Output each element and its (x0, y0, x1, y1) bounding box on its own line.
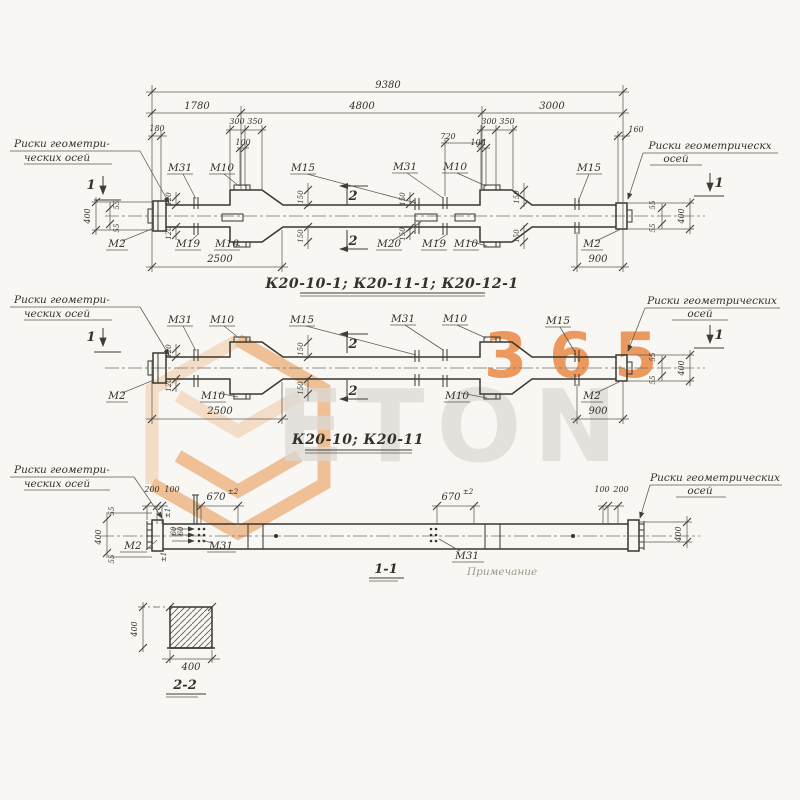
label-m10: М10 (453, 238, 478, 250)
dim-seg3: 3000 (539, 101, 565, 112)
dim-seg1: 1780 (184, 101, 210, 112)
label-m31: М31 (167, 162, 192, 174)
dim-seg2: 4800 (348, 101, 375, 112)
label-m20: М20 (376, 238, 401, 250)
dim-400-height: 400 (130, 621, 139, 637)
label-m2: М2 (107, 238, 126, 250)
dim-150: 150 (513, 190, 521, 204)
drawing-sheet: ETON 365 (0, 0, 800, 800)
dim-900: 900 (588, 254, 608, 265)
dim-55: 55 (113, 223, 121, 232)
label-m31: М31 (390, 313, 415, 325)
label-m31: М31 (454, 550, 479, 562)
dim-55: 55 (649, 352, 657, 361)
dim-120: 120 (165, 226, 173, 240)
dim-2500: 2500 (206, 254, 233, 265)
dim-180: 180 (149, 124, 164, 133)
blueprint-svg: ETON 365 (0, 0, 800, 800)
column-cross-section (170, 607, 212, 648)
dim-tol: ±2 (228, 488, 239, 496)
label-m10: М10 (442, 313, 467, 325)
dim-300: 300 (229, 117, 244, 126)
dim-300b: 300 (481, 117, 496, 126)
dim-400-right: 400 (674, 526, 683, 542)
label-m31: М31 (167, 314, 192, 326)
title-k20-10-1: К20-10-1; К20-11-1; К20-12-1 (264, 276, 518, 292)
dim-400-width: 400 (180, 662, 201, 673)
note-line2: осей (687, 485, 712, 497)
dim-150: 150 (297, 342, 305, 356)
dim-55: 55 (649, 375, 657, 384)
title-k20-10: К20-10; К20-11 (291, 432, 424, 448)
dim-350b: 350 (499, 117, 514, 126)
view-label-1-1: 1-1 (374, 562, 398, 577)
dim-100: 100 (164, 485, 179, 494)
label-m2: М2 (107, 390, 126, 402)
dim-150: 150 (297, 190, 305, 204)
label-m15: М15 (545, 315, 570, 327)
label-m2: М2 (582, 390, 601, 402)
dim-400-left: 400 (83, 208, 92, 224)
label-m10: М10 (214, 238, 239, 250)
dim-150: 150 (297, 229, 305, 243)
section-mark-2: 2 (347, 234, 357, 249)
dim-55: 55 (108, 506, 116, 515)
dim-60: 60 (177, 526, 185, 535)
label-m2: М2 (582, 238, 601, 250)
dim-100: 100 (594, 485, 609, 494)
dim-400-left: 400 (94, 529, 103, 545)
note-line2: ческих осей (24, 308, 90, 320)
note-line2: осей (687, 308, 712, 320)
label-m31: М31 (392, 161, 417, 173)
dim-200: 200 (612, 485, 628, 494)
dim-400: 400 (677, 360, 686, 376)
dim-720: 720 (440, 132, 455, 141)
label-m10: М10 (200, 390, 225, 402)
note-line1: Риски геометрических (646, 295, 777, 307)
label-m15: М15 (576, 162, 601, 174)
dim-55: 55 (649, 200, 657, 209)
label-m10: М10 (209, 162, 234, 174)
note-line2: осей (663, 153, 688, 165)
dim-120: 120 (165, 378, 173, 392)
section-mark-1: 1 (714, 328, 723, 343)
dim-55: 55 (649, 223, 657, 232)
note-line1: Риски геометри- (13, 294, 110, 306)
dim-55: 55 (108, 554, 116, 563)
dim-tol: ±2 (463, 488, 474, 496)
note-line1: Риски геометрическх (647, 140, 771, 152)
label-m31: М31 (208, 540, 233, 552)
label-m2: М2 (123, 540, 142, 552)
section-mark-1: 1 (86, 330, 95, 345)
dim-pm1: ±1 (160, 552, 168, 562)
note-line1: Риски геометри- (13, 464, 110, 476)
label-m19: М19 (421, 238, 446, 250)
note-line2: ческих осей (24, 478, 90, 490)
label-m15: М15 (290, 162, 315, 174)
label-m19: М19 (175, 238, 200, 250)
label-m10: М10 (442, 161, 467, 173)
label-m10: М10 (209, 314, 234, 326)
remark-text: Примечание (466, 566, 537, 578)
note-line2: ческих осей (24, 152, 90, 164)
section-mark-2: 2 (347, 384, 357, 399)
dim-2500: 2500 (206, 406, 233, 417)
dim-670: 670 (441, 492, 461, 503)
dim-900: 900 (588, 406, 608, 417)
dim-150: 150 (399, 192, 407, 206)
section-mark-2: 2 (347, 337, 357, 352)
note-line1: Риски геометри- (13, 138, 110, 150)
dim-350: 350 (247, 117, 262, 126)
view-label-2-2: 2-2 (172, 678, 197, 693)
dim-400-right: 400 (677, 208, 686, 224)
section-mark-1: 1 (86, 178, 95, 193)
dim-160: 160 (628, 125, 643, 134)
label-m15: М15 (289, 314, 314, 326)
dim-150: 150 (513, 229, 521, 243)
dim-150: 150 (297, 381, 305, 395)
section-mark-1: 1 (714, 176, 723, 191)
dim-200: 200 (143, 485, 159, 494)
section-mark-2: 2 (347, 189, 357, 204)
dim-total: 9380 (375, 80, 401, 91)
dim-55: 55 (113, 200, 121, 209)
label-m10: М10 (444, 390, 469, 402)
dim-100: 100 (235, 138, 250, 147)
dim-100b: 100 (470, 138, 485, 147)
dim-670: 670 (206, 492, 226, 503)
dim-pm1: ±1 (164, 508, 172, 518)
note-line1: Риски геометрических (649, 472, 780, 484)
